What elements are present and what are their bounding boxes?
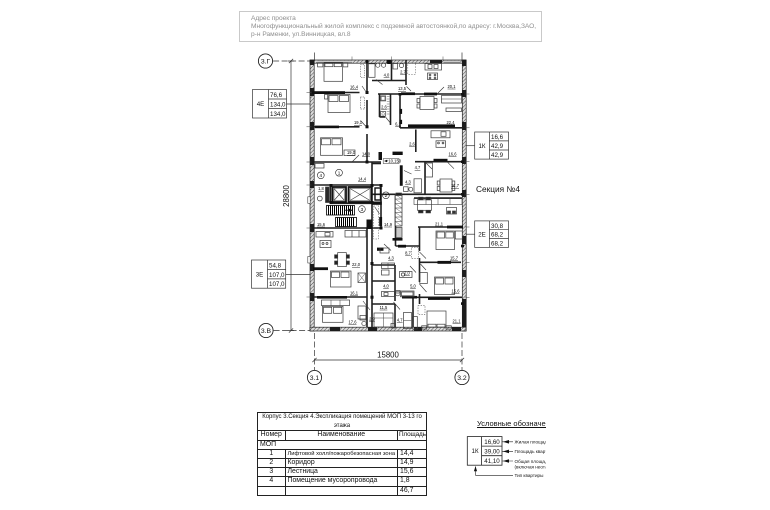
svg-text:Жилая площадь: Жилая площадь [515, 440, 551, 445]
svg-text:3: 3 [361, 207, 364, 212]
svg-text:14,9: 14,9 [384, 222, 393, 227]
svg-text:68,2: 68,2 [491, 232, 504, 239]
svg-text:3.В: 3.В [261, 328, 272, 335]
svg-text:16,6: 16,6 [449, 152, 458, 157]
svg-text:42,9: 42,9 [491, 152, 504, 159]
svg-text:4,7: 4,7 [397, 318, 403, 323]
svg-text:41,10: 41,10 [484, 458, 500, 465]
svg-text:2Е: 2Е [478, 231, 486, 238]
svg-text:134,0: 134,0 [270, 111, 286, 118]
svg-text:21,1: 21,1 [435, 221, 444, 226]
svg-text:14,7: 14,7 [451, 183, 460, 188]
svg-text:19,0: 19,0 [347, 150, 356, 155]
svg-text:8,7: 8,7 [405, 251, 411, 256]
svg-text:2,6: 2,6 [409, 142, 415, 147]
svg-text:4Е: 4Е [257, 101, 265, 108]
svg-text:6,1: 6,1 [395, 122, 401, 127]
svg-text:4,0: 4,0 [384, 73, 390, 78]
svg-text:+10,150: +10,150 [386, 159, 402, 164]
svg-text:16,1: 16,1 [350, 290, 359, 295]
svg-text:107,0: 107,0 [269, 281, 285, 288]
svg-text:21,1: 21,1 [453, 318, 462, 323]
svg-text:2,7: 2,7 [400, 70, 406, 75]
svg-text:19,1: 19,1 [354, 120, 363, 125]
svg-text:76,6: 76,6 [270, 92, 283, 99]
svg-text:68,2: 68,2 [491, 241, 504, 248]
svg-text:16,4: 16,4 [350, 85, 359, 90]
svg-text:54,8: 54,8 [269, 262, 282, 269]
svg-text:2,0: 2,0 [404, 271, 410, 276]
svg-text:1К: 1К [478, 143, 485, 150]
svg-text:16,60: 16,60 [484, 439, 500, 446]
svg-text:11,5: 11,5 [380, 305, 388, 310]
svg-text:22,0: 22,0 [352, 262, 361, 267]
svg-text:1: 1 [338, 170, 341, 175]
svg-text:Тип квартиры: Тип квартиры [515, 473, 544, 478]
svg-text:1,8: 1,8 [318, 186, 324, 191]
svg-text:3.2: 3.2 [457, 375, 467, 382]
svg-text:20,1: 20,1 [448, 84, 457, 89]
svg-text:22,4: 22,4 [447, 120, 456, 125]
svg-text:16,6: 16,6 [491, 134, 504, 141]
svg-text:15,7: 15,7 [450, 255, 459, 260]
svg-text:5,0: 5,0 [410, 284, 416, 289]
svg-text:39,00: 39,00 [484, 449, 500, 456]
svg-text:4,3: 4,3 [405, 180, 411, 185]
svg-text:134,0: 134,0 [270, 102, 286, 109]
svg-text:4,7: 4,7 [415, 165, 421, 170]
svg-text:42,9: 42,9 [491, 143, 504, 150]
svg-text:3.1: 3.1 [310, 375, 320, 382]
svg-text:Секция №4: Секция №4 [476, 184, 520, 194]
svg-text:17,6: 17,6 [349, 319, 358, 324]
svg-text:14,0: 14,0 [362, 151, 371, 156]
svg-text:2,9: 2,9 [369, 317, 375, 322]
svg-text:4: 4 [320, 173, 323, 178]
svg-text:107,0: 107,0 [269, 272, 285, 279]
svg-text:14,4: 14,4 [358, 177, 367, 182]
svg-text:15800: 15800 [377, 351, 399, 360]
svg-text:30,8: 30,8 [491, 223, 504, 230]
svg-text:3Е: 3Е [256, 271, 264, 278]
svg-text:2: 2 [385, 193, 388, 198]
svg-text:Общая площадь: Общая площадь [515, 459, 551, 464]
svg-text:1К: 1К [472, 448, 479, 455]
svg-text:3.Г: 3.Г [261, 58, 271, 65]
svg-text:4,3: 4,3 [388, 256, 394, 261]
svg-text:2,6: 2,6 [381, 105, 387, 110]
svg-text:4,0: 4,0 [383, 284, 389, 289]
svg-text:28800: 28800 [282, 184, 291, 206]
svg-text:15,6: 15,6 [317, 222, 326, 227]
svg-text:13,5: 13,5 [398, 86, 407, 91]
svg-text:15,6: 15,6 [452, 288, 461, 293]
